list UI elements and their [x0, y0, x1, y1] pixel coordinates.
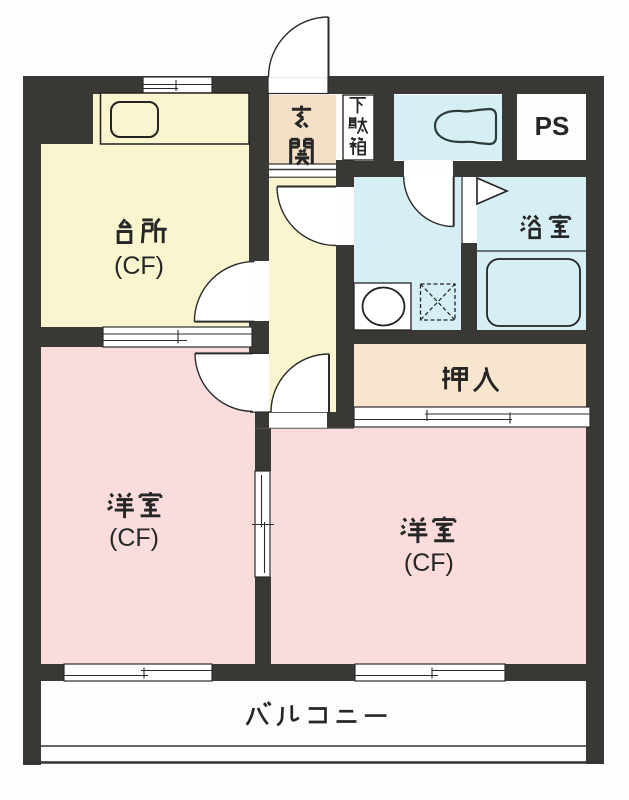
svg-text:(CF): (CF)	[109, 524, 159, 552]
svg-text:PS: PS	[535, 111, 570, 141]
svg-text:(CF): (CF)	[404, 549, 454, 577]
svg-text:(CF): (CF)	[114, 252, 164, 280]
